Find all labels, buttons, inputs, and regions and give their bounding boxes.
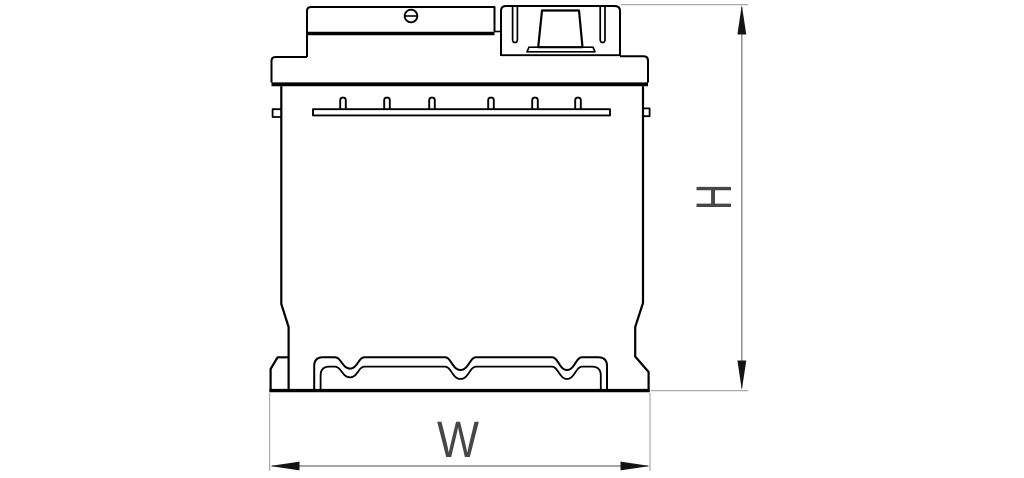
dimension-arrows xyxy=(270,5,746,470)
lid-right-edge xyxy=(620,56,648,82)
body-left-tab xyxy=(273,109,282,117)
width-dimension-label: W xyxy=(437,411,479,468)
height-dimension-label: H xyxy=(686,184,742,210)
body-right-edge xyxy=(635,86,648,390)
extension-lines xyxy=(270,5,748,471)
battery-outline xyxy=(269,6,650,391)
cell-plug-2 xyxy=(384,98,390,110)
cell-plug-6 xyxy=(575,98,581,110)
housing-slot-right xyxy=(600,7,605,43)
ledge-bar xyxy=(313,109,610,115)
terminal-base-plate xyxy=(527,47,595,52)
terminal-housing-outline xyxy=(501,6,620,56)
width-arrow-right-icon xyxy=(621,462,651,471)
cell-plug-4 xyxy=(488,98,494,110)
body-left-edge xyxy=(281,86,288,390)
cell-plug-5 xyxy=(532,98,538,110)
height-arrow-bottom-icon xyxy=(737,361,746,391)
base-hold-down-ledge xyxy=(314,357,607,390)
battery-lid xyxy=(272,56,649,84)
height-arrow-top-icon xyxy=(737,5,746,35)
lid-left-edge xyxy=(272,57,308,83)
base-ledge-outer-line xyxy=(314,357,607,390)
battery-technical-drawing: H W xyxy=(0,0,1024,478)
cell-plug-1 xyxy=(340,98,346,110)
terminal-post xyxy=(538,11,582,48)
body-left-foot xyxy=(271,357,289,390)
drawing-svg: H W xyxy=(0,0,1024,478)
terminal-housing xyxy=(501,6,620,56)
cell-plug-ledge xyxy=(313,98,610,116)
dimension-lines xyxy=(272,7,742,466)
cell-plug-3 xyxy=(429,98,435,110)
width-arrow-left-icon xyxy=(270,462,300,471)
housing-slot-left xyxy=(513,7,518,43)
battery-body xyxy=(269,86,650,390)
vent-screw-icon xyxy=(405,10,418,23)
